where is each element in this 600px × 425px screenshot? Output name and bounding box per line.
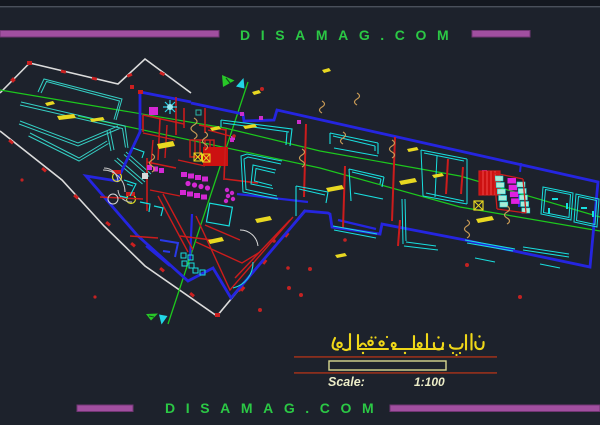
svg-text:DISAMAG.COM: DISAMAG.COM	[240, 27, 459, 43]
svg-text:1:100: 1:100	[414, 375, 445, 389]
svg-text:Scale:: Scale:	[328, 375, 365, 389]
svg-text:DISAMAG.COM: DISAMAG.COM	[165, 400, 384, 416]
